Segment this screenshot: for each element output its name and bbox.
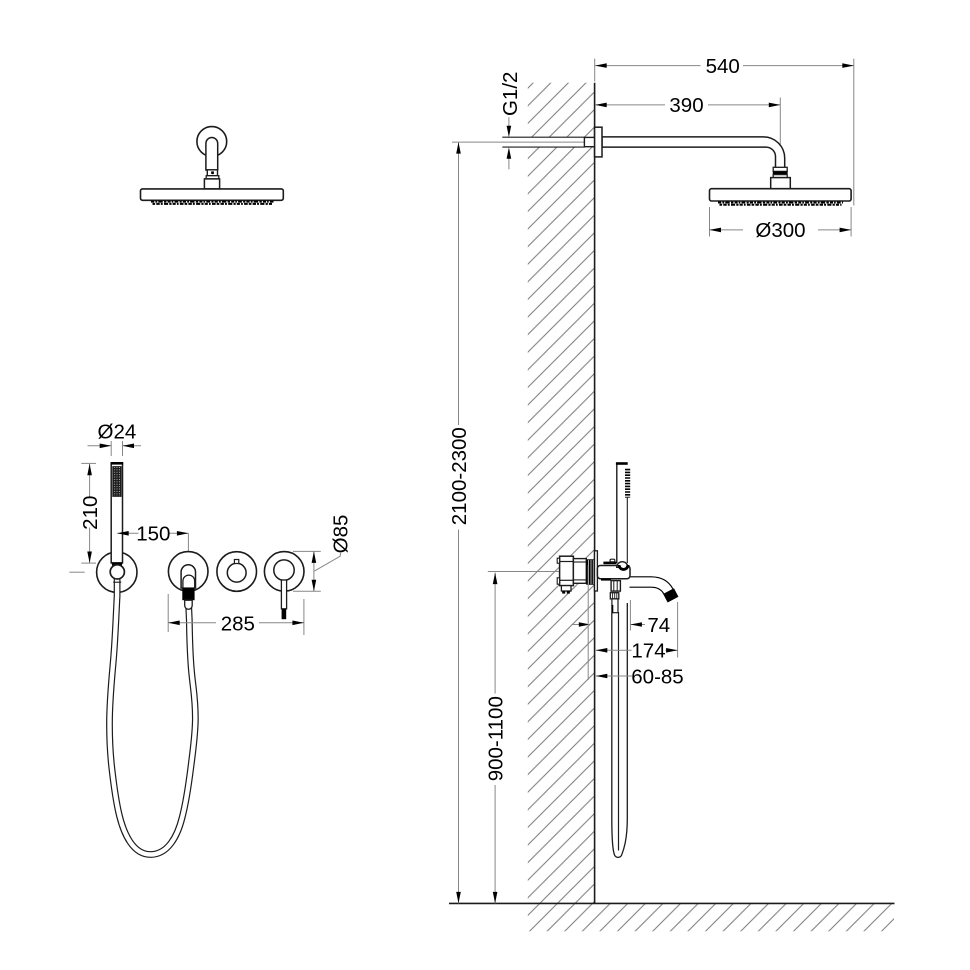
- svg-text:Ø24: Ø24: [98, 421, 137, 444]
- svg-text:2100-2300: 2100-2300: [448, 427, 471, 525]
- svg-text:390: 390: [669, 94, 703, 117]
- svg-text:150: 150: [136, 523, 170, 546]
- svg-text:Ø300: Ø300: [755, 219, 805, 242]
- svg-text:285: 285: [221, 612, 255, 635]
- svg-text:74: 74: [647, 614, 670, 637]
- svg-text:540: 540: [706, 55, 740, 78]
- svg-text:210: 210: [79, 496, 102, 530]
- svg-text:Ø85: Ø85: [329, 515, 352, 554]
- svg-text:60-85: 60-85: [631, 665, 683, 688]
- svg-text:174: 174: [631, 640, 665, 663]
- svg-text:900-1100: 900-1100: [484, 696, 507, 781]
- svg-text:G1/2: G1/2: [499, 72, 522, 116]
